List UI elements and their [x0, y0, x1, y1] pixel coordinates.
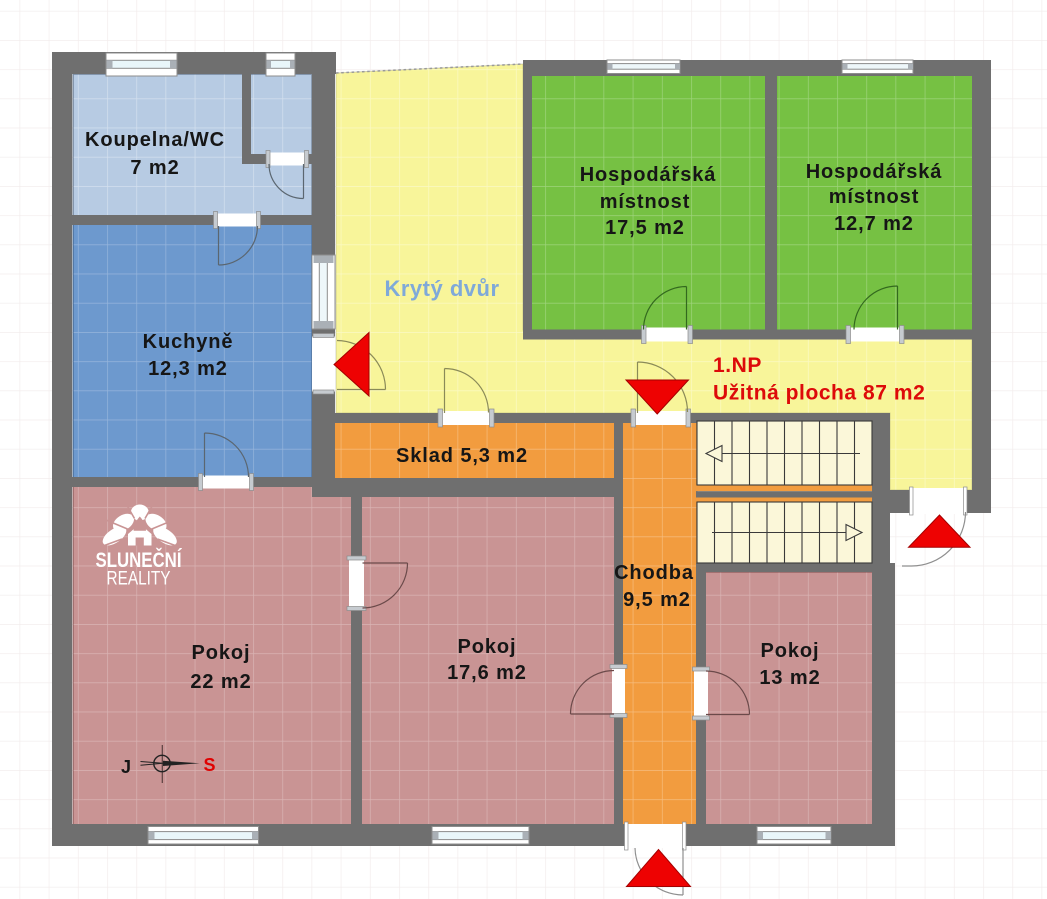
svg-text:Sklad 5,3 m2: Sklad 5,3 m2: [396, 445, 528, 467]
svg-text:Koupelna/WC: Koupelna/WC: [85, 129, 225, 151]
svg-text:REALITY: REALITY: [107, 569, 171, 590]
svg-text:Užitná plocha 87 m2: Užitná plocha 87 m2: [713, 382, 925, 405]
svg-text:22 m2: 22 m2: [190, 671, 251, 693]
svg-text:12,3 m2: 12,3 m2: [148, 358, 228, 380]
svg-text:Hospodářská: Hospodářská: [580, 164, 717, 186]
svg-text:Pokoj: Pokoj: [192, 642, 251, 664]
svg-text:1.NP: 1.NP: [713, 354, 762, 377]
svg-text:9,5 m2: 9,5 m2: [623, 589, 691, 611]
svg-text:místnost: místnost: [829, 186, 920, 208]
svg-text:Chodba: Chodba: [614, 562, 694, 584]
svg-text:17,6 m2: 17,6 m2: [447, 662, 527, 684]
svg-text:S: S: [203, 755, 215, 775]
svg-text:12,7 m2: 12,7 m2: [834, 213, 914, 235]
svg-text:místnost: místnost: [600, 191, 691, 213]
svg-text:Kuchyně: Kuchyně: [143, 331, 234, 353]
svg-text:Krytý dvůr: Krytý dvůr: [384, 276, 499, 301]
svg-text:7 m2: 7 m2: [130, 157, 179, 179]
svg-text:Hospodářská: Hospodářská: [806, 161, 943, 183]
svg-text:Pokoj: Pokoj: [761, 640, 820, 662]
svg-text:Pokoj: Pokoj: [458, 636, 517, 658]
svg-text:17,5 m2: 17,5 m2: [605, 217, 685, 239]
svg-text:J: J: [121, 757, 131, 777]
svg-text:13 m2: 13 m2: [759, 667, 820, 689]
